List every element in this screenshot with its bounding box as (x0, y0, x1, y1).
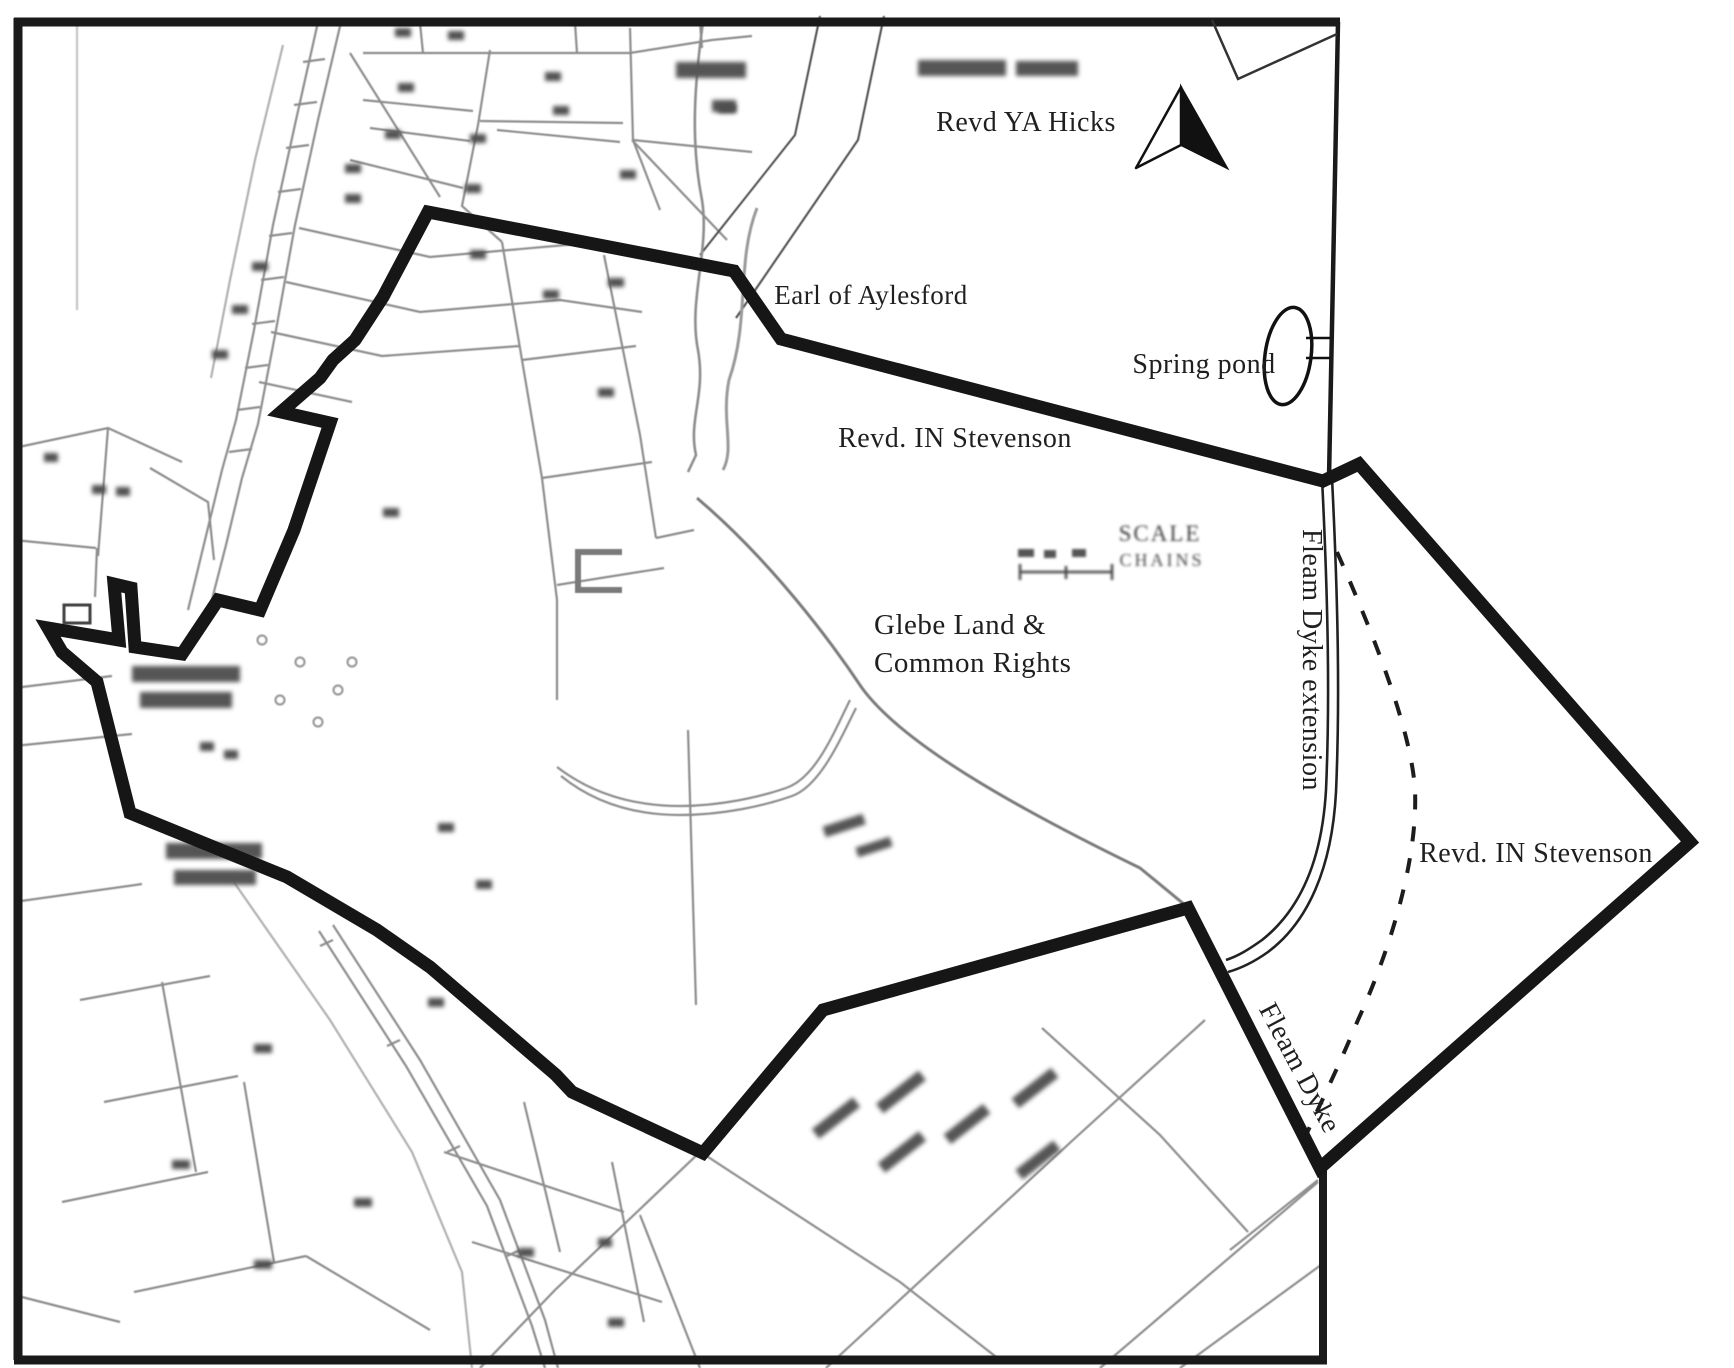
north-arrow-icon (1136, 87, 1227, 168)
map-frame (14, 18, 1340, 1360)
scale-bar (1018, 549, 1112, 580)
stream-line (688, 22, 704, 472)
frame-right-upper (1329, 22, 1338, 478)
label-glebe-land-line2: Common Rights (874, 647, 1071, 679)
stream-line (723, 208, 757, 470)
tree-dots (258, 636, 357, 727)
hedge-line (697, 498, 1185, 905)
road-edge (319, 931, 545, 1368)
label-scale-heading: SCALE (1119, 521, 1202, 546)
road-edge (333, 925, 558, 1368)
road-edge (208, 22, 341, 615)
label-revd-in-stevenson-right: Revd. IN Stevenson (1419, 838, 1653, 869)
corner-parcel-lines (1212, 20, 1337, 79)
map-page: Revd YA Hicks Earl of Aylesford Spring p… (0, 0, 1734, 1368)
label-fleam-dyke-extension: Fleam Dyke extension (1296, 529, 1327, 791)
scanned-map-layer (14, 16, 1325, 1368)
label-spring-pond: Spring pond (1132, 349, 1275, 380)
label-glebe-land-line1: Glebe Land & (874, 609, 1046, 641)
small-parcel (578, 552, 622, 590)
building-square (64, 605, 90, 623)
label-earl-of-aylesford: Earl of Aylesford (774, 280, 967, 310)
label-scale-units: CHAINS (1119, 550, 1204, 570)
boundary-outline (48, 212, 1690, 1168)
road-edge (211, 45, 283, 378)
label-revd-in-stevenson-middle: Revd. IN Stevenson (838, 423, 1072, 454)
label-revd-ya-hicks: Revd YA Hicks (936, 107, 1116, 138)
map-canvas: Revd YA Hicks Earl of Aylesford Spring p… (0, 0, 1734, 1368)
